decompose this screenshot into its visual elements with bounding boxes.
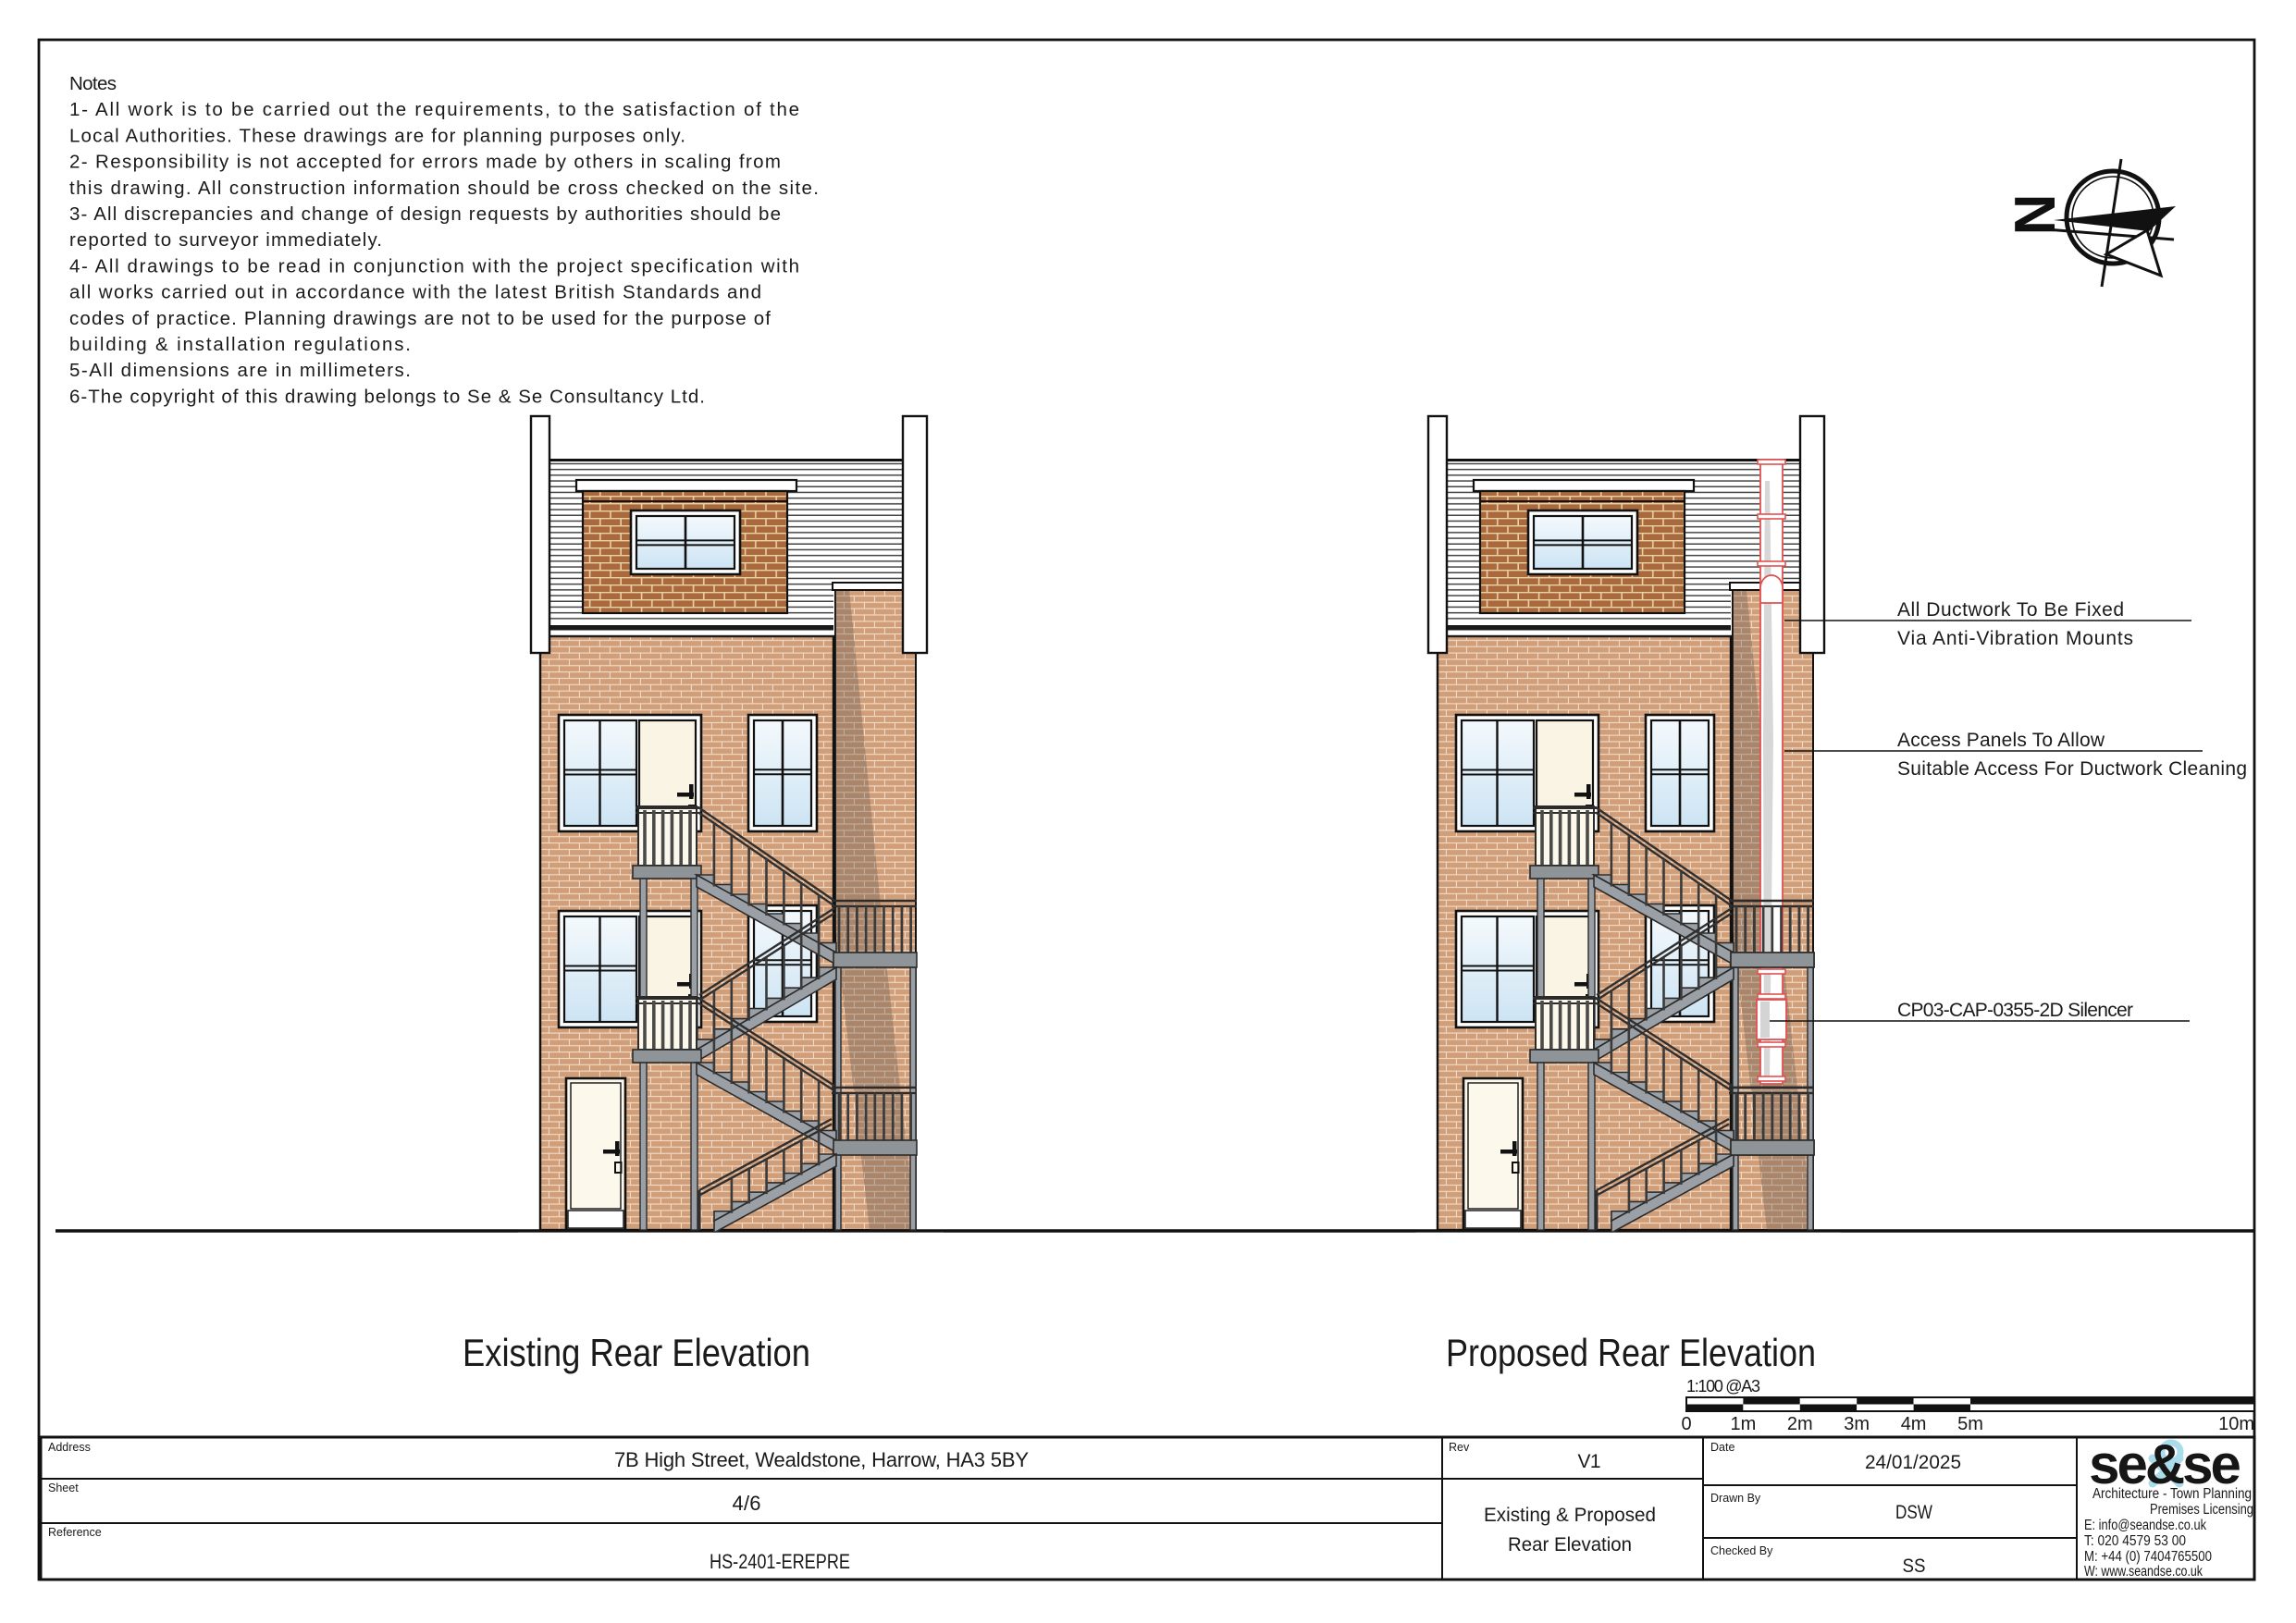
svg-text:0: 0 xyxy=(1681,1414,1691,1434)
svg-text:1:100 @A3: 1:100 @A3 xyxy=(1686,1377,1760,1396)
svg-text:7B High Street, Wealdstone, Ha: 7B High Street, Wealdstone, Harrow, HA3 … xyxy=(614,1448,1029,1471)
svg-text:1m: 1m xyxy=(1731,1414,1757,1434)
svg-text:building & installation regula: building & installation regulations. xyxy=(69,334,411,355)
svg-text:HS-2401-EREPRE: HS-2401-EREPRE xyxy=(710,1550,850,1573)
svg-text:4/6: 4/6 xyxy=(733,1492,761,1515)
svg-text:E: info@seandse.co.uk: E: info@seandse.co.uk xyxy=(2084,1518,2206,1533)
svg-text:CP03-CAP-0355-2D Silencer: CP03-CAP-0355-2D Silencer xyxy=(1897,1000,2133,1021)
svg-text:Existing & Proposed: Existing & Proposed xyxy=(1484,1504,1656,1526)
svg-text:Rear Elevation: Rear Elevation xyxy=(1508,1533,1632,1555)
svg-text:Rev: Rev xyxy=(1449,1441,1470,1454)
svg-text:N: N xyxy=(2004,194,2068,236)
svg-text:T: 020 4579 53 00: T: 020 4579 53 00 xyxy=(2084,1533,2186,1549)
svg-text:1- All work is to be carried o: 1- All work is to be carried out the req… xyxy=(69,99,799,120)
svg-text:Suitable Access For Ductwork C: Suitable Access For Ductwork Cleaning xyxy=(1897,758,2247,780)
svg-text:V1: V1 xyxy=(1578,1451,1601,1472)
svg-text:W: www.seandse.co.uk: W: www.seandse.co.uk xyxy=(2084,1564,2203,1580)
svg-text:Proposed Rear Elevation: Proposed Rear Elevation xyxy=(1446,1331,1816,1374)
svg-text:5m: 5m xyxy=(1957,1414,1983,1434)
svg-text:codes of practice. Planning dr: codes of practice. Planning drawings are… xyxy=(69,308,771,329)
svg-text:Sheet: Sheet xyxy=(48,1482,79,1494)
svg-text:Access Panels To Allow: Access Panels To Allow xyxy=(1897,730,2105,751)
svg-text:6-The copyright of this drawin: 6-The copyright of this drawing belongs … xyxy=(69,386,705,407)
svg-text:Notes: Notes xyxy=(69,73,117,94)
svg-text:Checked By: Checked By xyxy=(1710,1544,1773,1557)
svg-text:10m: 10m xyxy=(2218,1414,2254,1434)
svg-text:Date: Date xyxy=(1710,1441,1734,1454)
svg-text:2m: 2m xyxy=(1787,1414,1813,1434)
svg-text:2- Responsibility is not accep: 2- Responsibility is not accepted for er… xyxy=(69,152,781,173)
svg-text:5-All dimensions are in millim: 5-All dimensions are in millimeters. xyxy=(69,360,411,381)
svg-text:3- All discrepancies and chang: 3- All discrepancies and change of desig… xyxy=(69,203,781,225)
svg-text:reported to surveyor immediate: reported to surveyor immediately. xyxy=(69,229,382,251)
svg-text:this drawing. All construction: this drawing. All construction informati… xyxy=(69,178,819,199)
svg-text:24/01/2025: 24/01/2025 xyxy=(1865,1451,1961,1473)
svg-text:Existing Rear Elevation: Existing Rear Elevation xyxy=(463,1331,810,1374)
svg-text:all works carried out in accor: all works carried out in accordance with… xyxy=(69,282,761,303)
svg-text:All Ductwork To Be Fixed: All Ductwork To Be Fixed xyxy=(1897,599,2124,621)
svg-text:4m: 4m xyxy=(1901,1414,1927,1434)
svg-text:Address: Address xyxy=(48,1441,91,1454)
svg-text:3m: 3m xyxy=(1844,1414,1870,1434)
svg-text:Via Anti-Vibration Mounts: Via Anti-Vibration Mounts xyxy=(1897,628,2133,649)
svg-text:Reference: Reference xyxy=(48,1526,102,1539)
svg-text:Drawn By: Drawn By xyxy=(1710,1492,1761,1505)
svg-text:DSW: DSW xyxy=(1895,1501,1933,1523)
svg-text:SS: SS xyxy=(1903,1555,1926,1577)
svg-text:Premises Licensing: Premises Licensing xyxy=(2150,1502,2253,1518)
svg-text:M: +44 (0) 7404765500: M: +44 (0) 7404765500 xyxy=(2084,1549,2212,1565)
svg-text:Local Authorities. These drawi: Local Authorities. These drawings are fo… xyxy=(69,125,685,146)
svg-text:Architecture - Town Planning: Architecture - Town Planning xyxy=(2092,1486,2252,1502)
